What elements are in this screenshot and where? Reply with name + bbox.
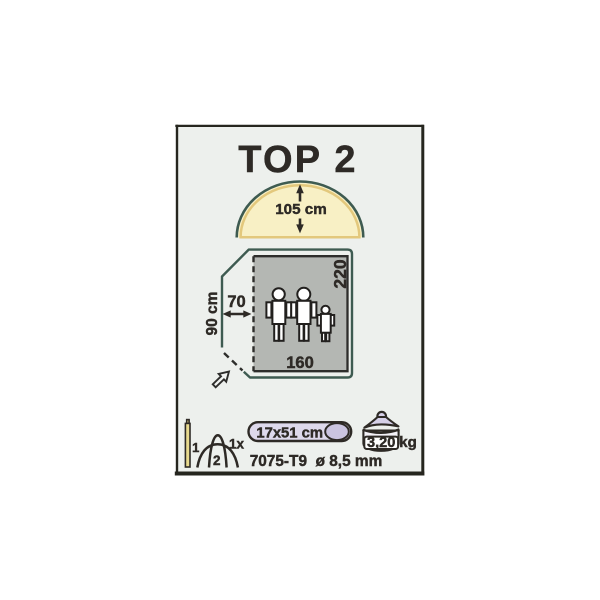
svg-text:kg: kg [399, 434, 417, 451]
svg-text:90 cm: 90 cm [204, 292, 221, 336]
svg-text:1: 1 [192, 440, 199, 455]
svg-text:3,20: 3,20 [367, 435, 395, 451]
svg-text:TOP 2: TOP 2 [238, 139, 357, 181]
svg-text:7075-T9 ø 8,5 mm: 7075-T9 ø 8,5 mm [250, 453, 383, 470]
svg-text:1x: 1x [229, 437, 245, 452]
svg-text:17x51 cm: 17x51 cm [256, 425, 323, 441]
svg-text:70: 70 [227, 293, 245, 311]
svg-text:160: 160 [286, 354, 314, 372]
svg-text:2: 2 [213, 453, 221, 468]
svg-text:220: 220 [330, 259, 350, 288]
svg-text:105 cm: 105 cm [275, 201, 327, 218]
